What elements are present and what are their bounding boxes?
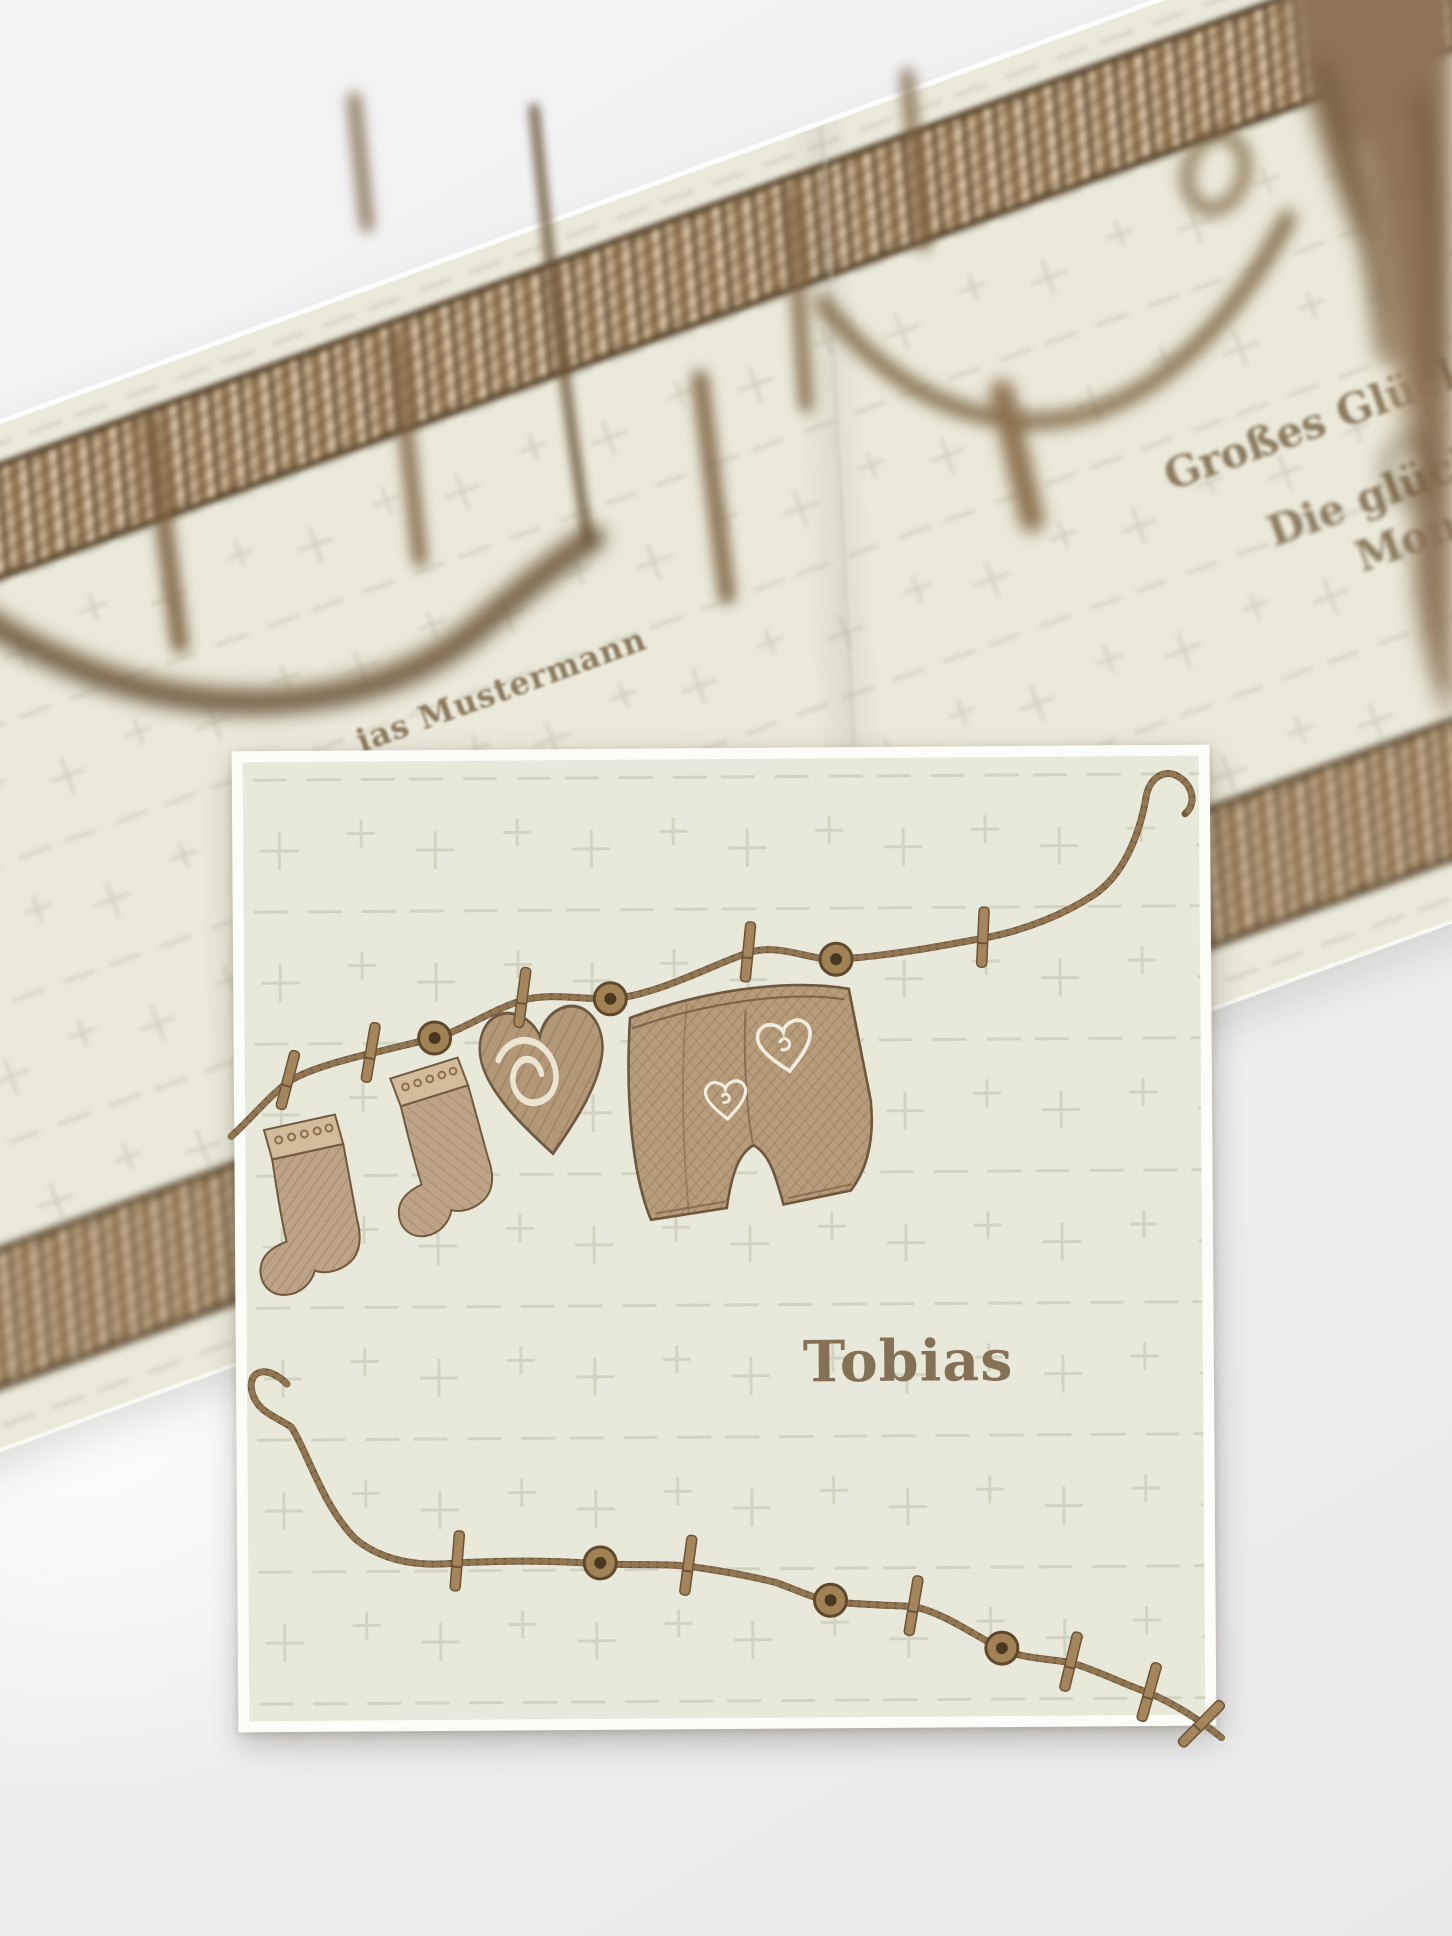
wooden-button-icon [418, 1022, 450, 1054]
knit-pants-icon [627, 983, 873, 1222]
wooden-button-icon [584, 1547, 616, 1579]
clothespin-icon [450, 1531, 465, 1592]
product-photo: ias Mustermann Großes Glück kann s Die g… [0, 0, 1452, 1936]
wooden-button-icon [820, 943, 852, 975]
baby-name-title: Tobias [803, 1327, 1014, 1395]
clothespin-icon [1177, 1699, 1226, 1749]
clothesline-illustration [243, 756, 1206, 1722]
wooden-button-icon [594, 983, 626, 1015]
knit-heart-icon [476, 1003, 614, 1161]
foreground-card-front: Tobias [232, 745, 1217, 1733]
knit-sock-icon [375, 1055, 500, 1240]
clothespin-icon [977, 907, 990, 967]
clothespin-icon [740, 921, 756, 982]
wooden-button-icon [814, 1584, 846, 1616]
wooden-button-icon [986, 1632, 1018, 1664]
knit-sock-icon [249, 1113, 364, 1296]
card-front-face: Tobias [243, 756, 1206, 1722]
clothesline-rope-lower [251, 1365, 1221, 1744]
